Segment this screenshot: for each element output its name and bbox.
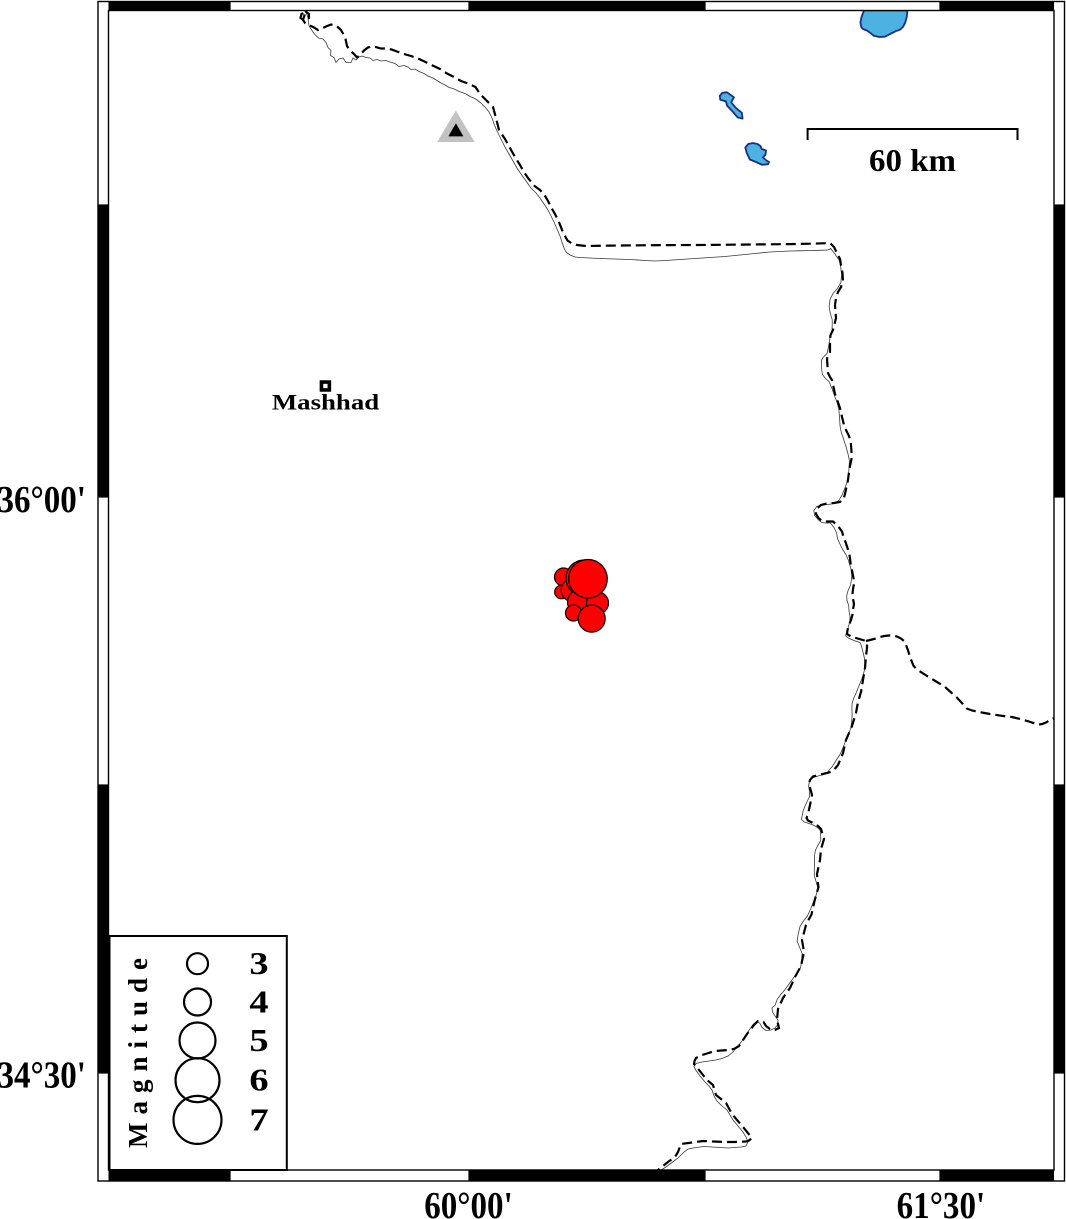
svg-text:61°30': 61°30'	[897, 1184, 986, 1219]
svg-text:4: 4	[249, 984, 269, 1019]
svg-text:Magnitude: Magnitude	[123, 950, 153, 1148]
svg-text:34°30': 34°30'	[0, 1053, 86, 1096]
svg-text:3: 3	[249, 946, 268, 981]
svg-text:Mashhad: Mashhad	[272, 391, 380, 415]
svg-text:5: 5	[249, 1023, 268, 1058]
svg-text:60°00': 60°00'	[424, 1184, 513, 1219]
svg-text:36°00': 36°00'	[0, 478, 86, 521]
svg-text:60 km: 60 km	[869, 143, 956, 178]
svg-text:7: 7	[249, 1102, 268, 1137]
svg-text:6: 6	[249, 1063, 268, 1098]
